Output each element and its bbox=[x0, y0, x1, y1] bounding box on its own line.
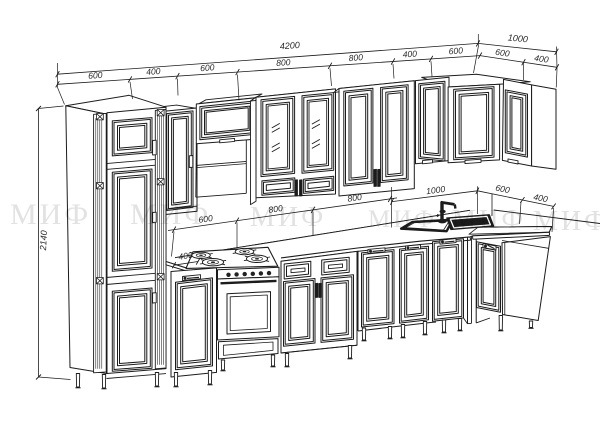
svg-text:600: 600 bbox=[200, 62, 215, 73]
svg-text:МИФ: МИФ bbox=[250, 202, 326, 233]
svg-text:600: 600 bbox=[448, 45, 463, 56]
svg-text:800: 800 bbox=[276, 57, 291, 68]
svg-text:800: 800 bbox=[348, 52, 363, 63]
svg-text:800: 800 bbox=[347, 192, 363, 204]
svg-text:МИФ: МИФ bbox=[533, 206, 600, 237]
svg-text:МИФ: МИФ bbox=[130, 198, 211, 231]
svg-text:400: 400 bbox=[402, 48, 417, 59]
svg-text:МИФ: МИФ bbox=[10, 198, 91, 231]
svg-text:1000: 1000 bbox=[507, 32, 528, 44]
svg-text:400: 400 bbox=[146, 66, 161, 77]
svg-text:4200: 4200 bbox=[279, 40, 300, 51]
svg-text:МИФ: МИФ bbox=[452, 204, 526, 234]
svg-text:МИФ: МИФ bbox=[368, 206, 437, 233]
svg-text:600: 600 bbox=[88, 70, 103, 81]
svg-text:2140: 2140 bbox=[38, 230, 49, 252]
